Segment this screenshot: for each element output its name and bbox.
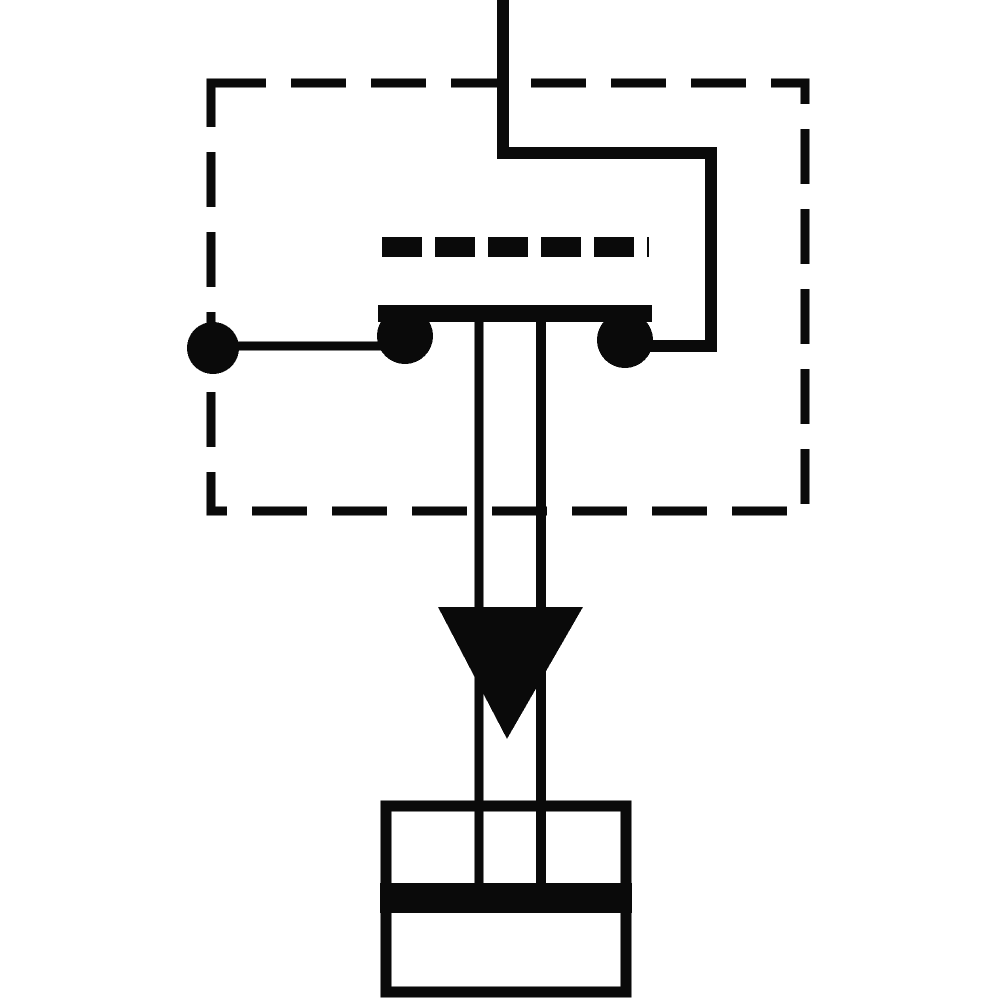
pressure-port-seal-band [380,883,632,913]
pressure-direction-arrow [438,607,583,739]
pressure-switch-schematic [0,0,1000,1000]
supply-line [503,0,711,346]
terminal-junction-dot [187,322,239,374]
diagram-page [0,0,1000,1000]
contact-right [597,312,653,368]
contact-left [377,308,433,364]
